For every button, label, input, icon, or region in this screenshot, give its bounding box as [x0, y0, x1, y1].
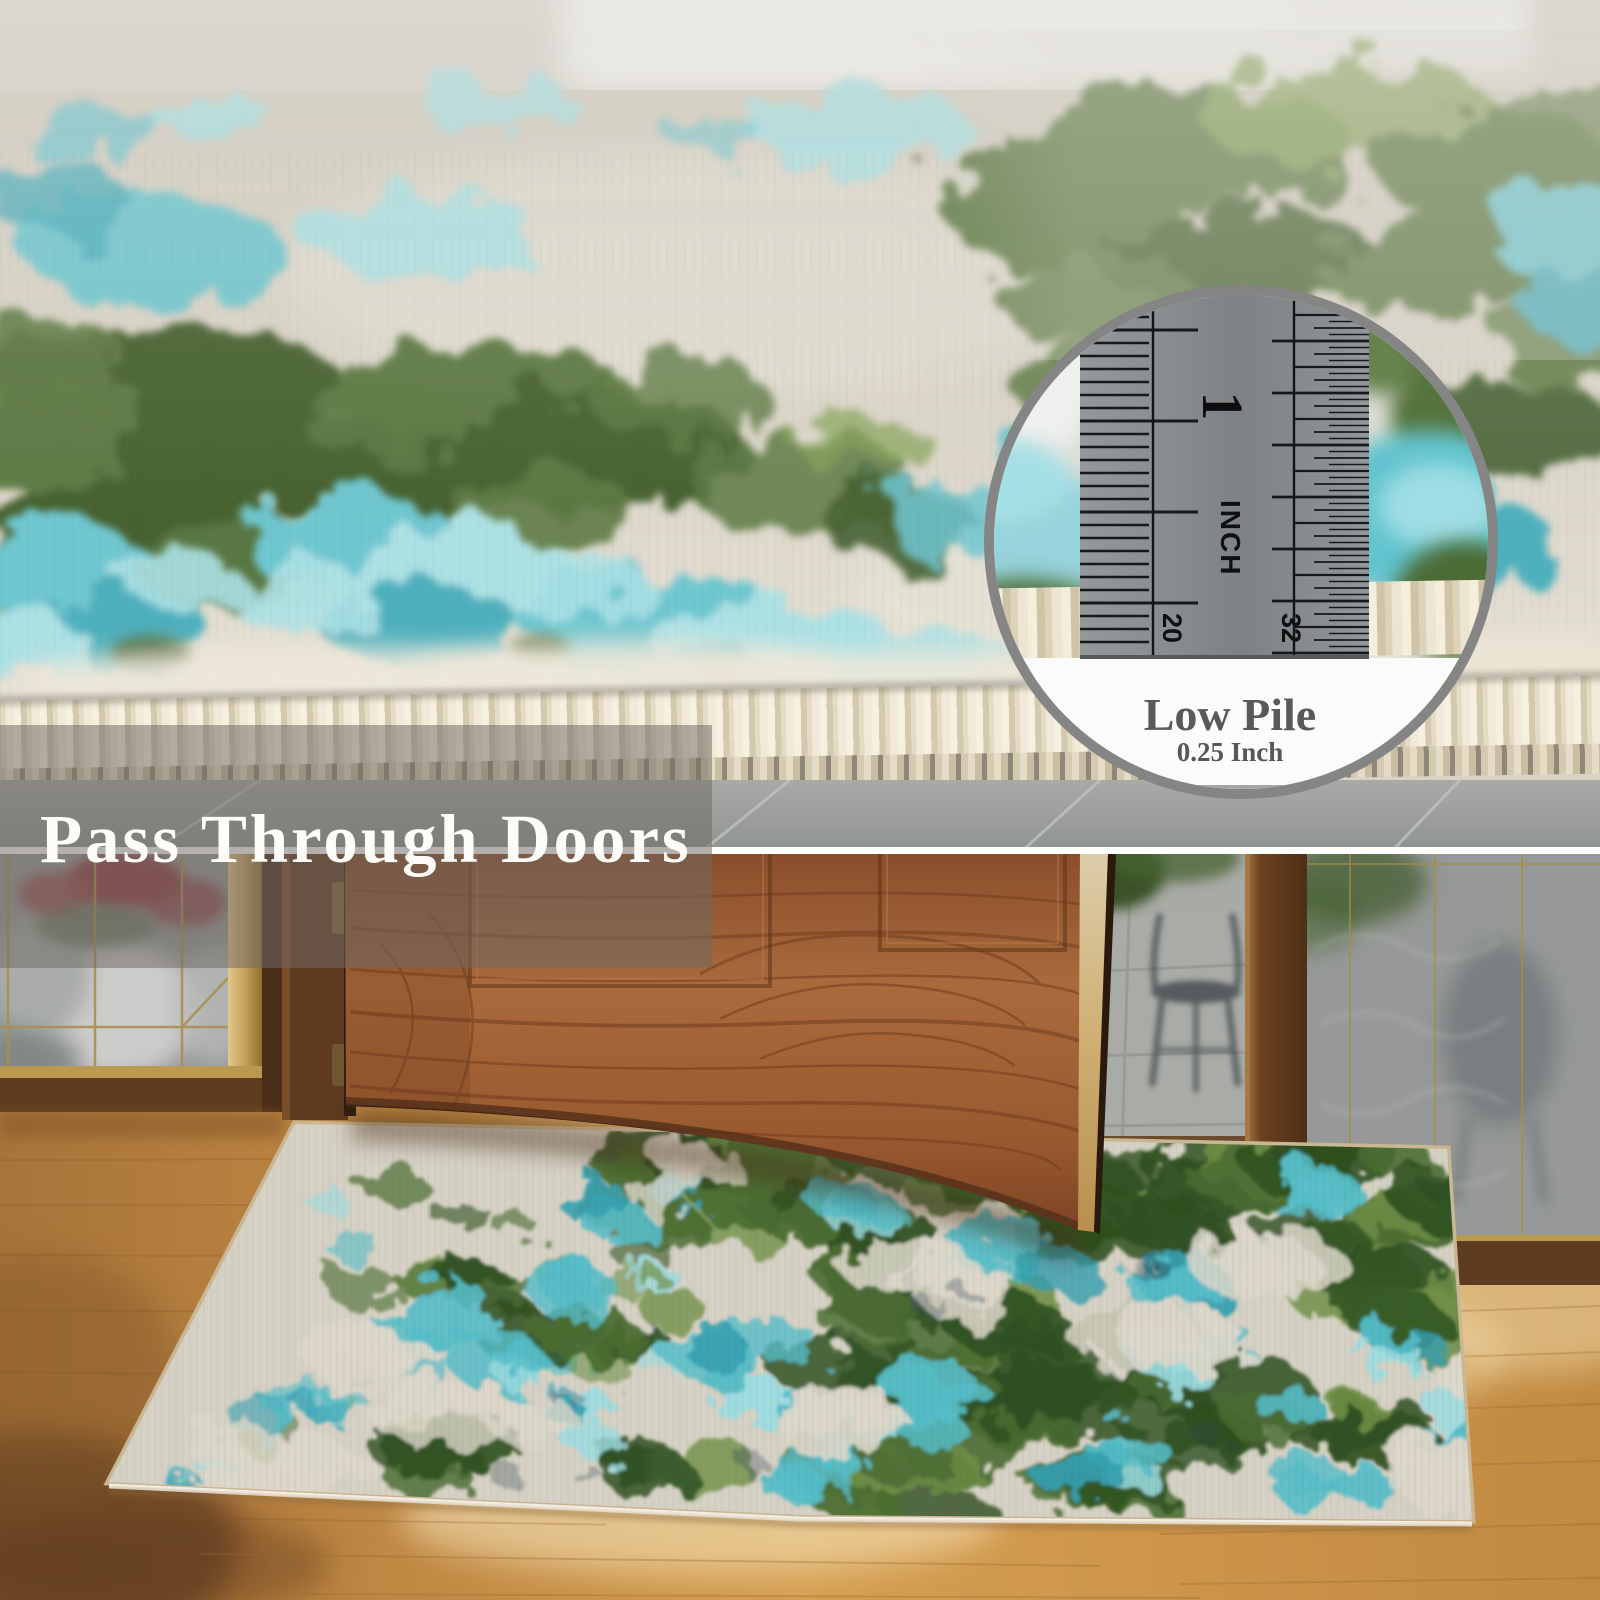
svg-text:20: 20 [1157, 613, 1187, 643]
svg-text:Low Pile: Low Pile [1144, 689, 1316, 740]
svg-text:1: 1 [1190, 392, 1255, 421]
svg-text:INCH: INCH [1215, 500, 1246, 576]
svg-text:32: 32 [1276, 613, 1306, 643]
svg-text:0.25 Inch: 0.25 Inch [1177, 737, 1284, 767]
